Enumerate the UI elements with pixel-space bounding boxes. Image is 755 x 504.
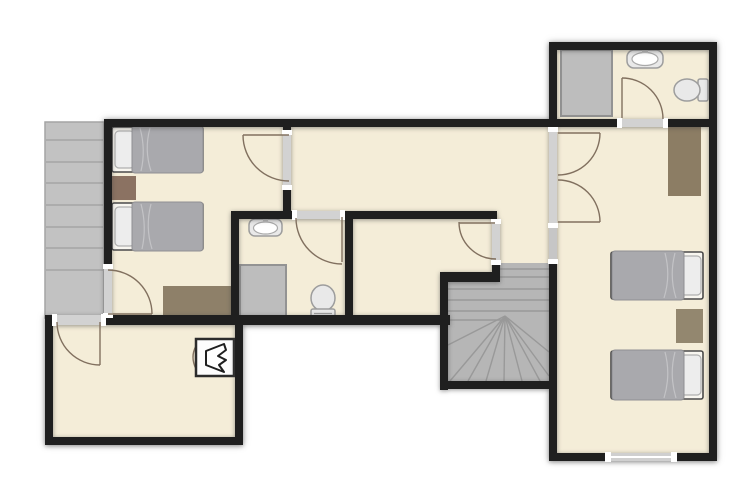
door-opening: [295, 211, 342, 219]
toilet: [311, 285, 335, 318]
double-door-opening: [549, 130, 557, 225]
floor-bottom-left-room: [45, 315, 243, 445]
dresser: [163, 286, 237, 317]
wall: [549, 42, 557, 127]
wall: [235, 315, 243, 445]
wall: [440, 272, 448, 390]
single-bed: [611, 251, 703, 300]
door-opening: [55, 315, 103, 325]
single-bed: [611, 350, 703, 400]
sidelight: [549, 227, 557, 261]
shower: [561, 50, 612, 116]
shower: [240, 265, 286, 318]
door-opening: [492, 222, 500, 262]
wall: [104, 119, 560, 127]
door-opening: [104, 267, 112, 315]
wall: [440, 381, 557, 389]
single-bed: [112, 126, 203, 173]
wall: [231, 211, 239, 325]
balcony-deck: [45, 122, 104, 318]
wall: [709, 42, 717, 461]
sink: [249, 219, 282, 236]
floor-plan-canvas: [0, 0, 755, 504]
floor-plan: [0, 0, 755, 504]
sink: [627, 50, 663, 68]
door-opening: [620, 119, 665, 127]
wardrobe: [668, 127, 701, 196]
nightstand: [676, 309, 703, 343]
wall: [45, 315, 53, 445]
wall: [345, 211, 353, 325]
nightstand: [112, 176, 136, 200]
wall: [45, 437, 243, 445]
wall: [549, 42, 717, 50]
wall: [440, 272, 500, 282]
door-opening: [283, 133, 291, 187]
wall: [231, 211, 497, 219]
fireplace-icon: [193, 339, 234, 376]
single-bed: [112, 202, 203, 251]
toilet: [674, 79, 708, 101]
